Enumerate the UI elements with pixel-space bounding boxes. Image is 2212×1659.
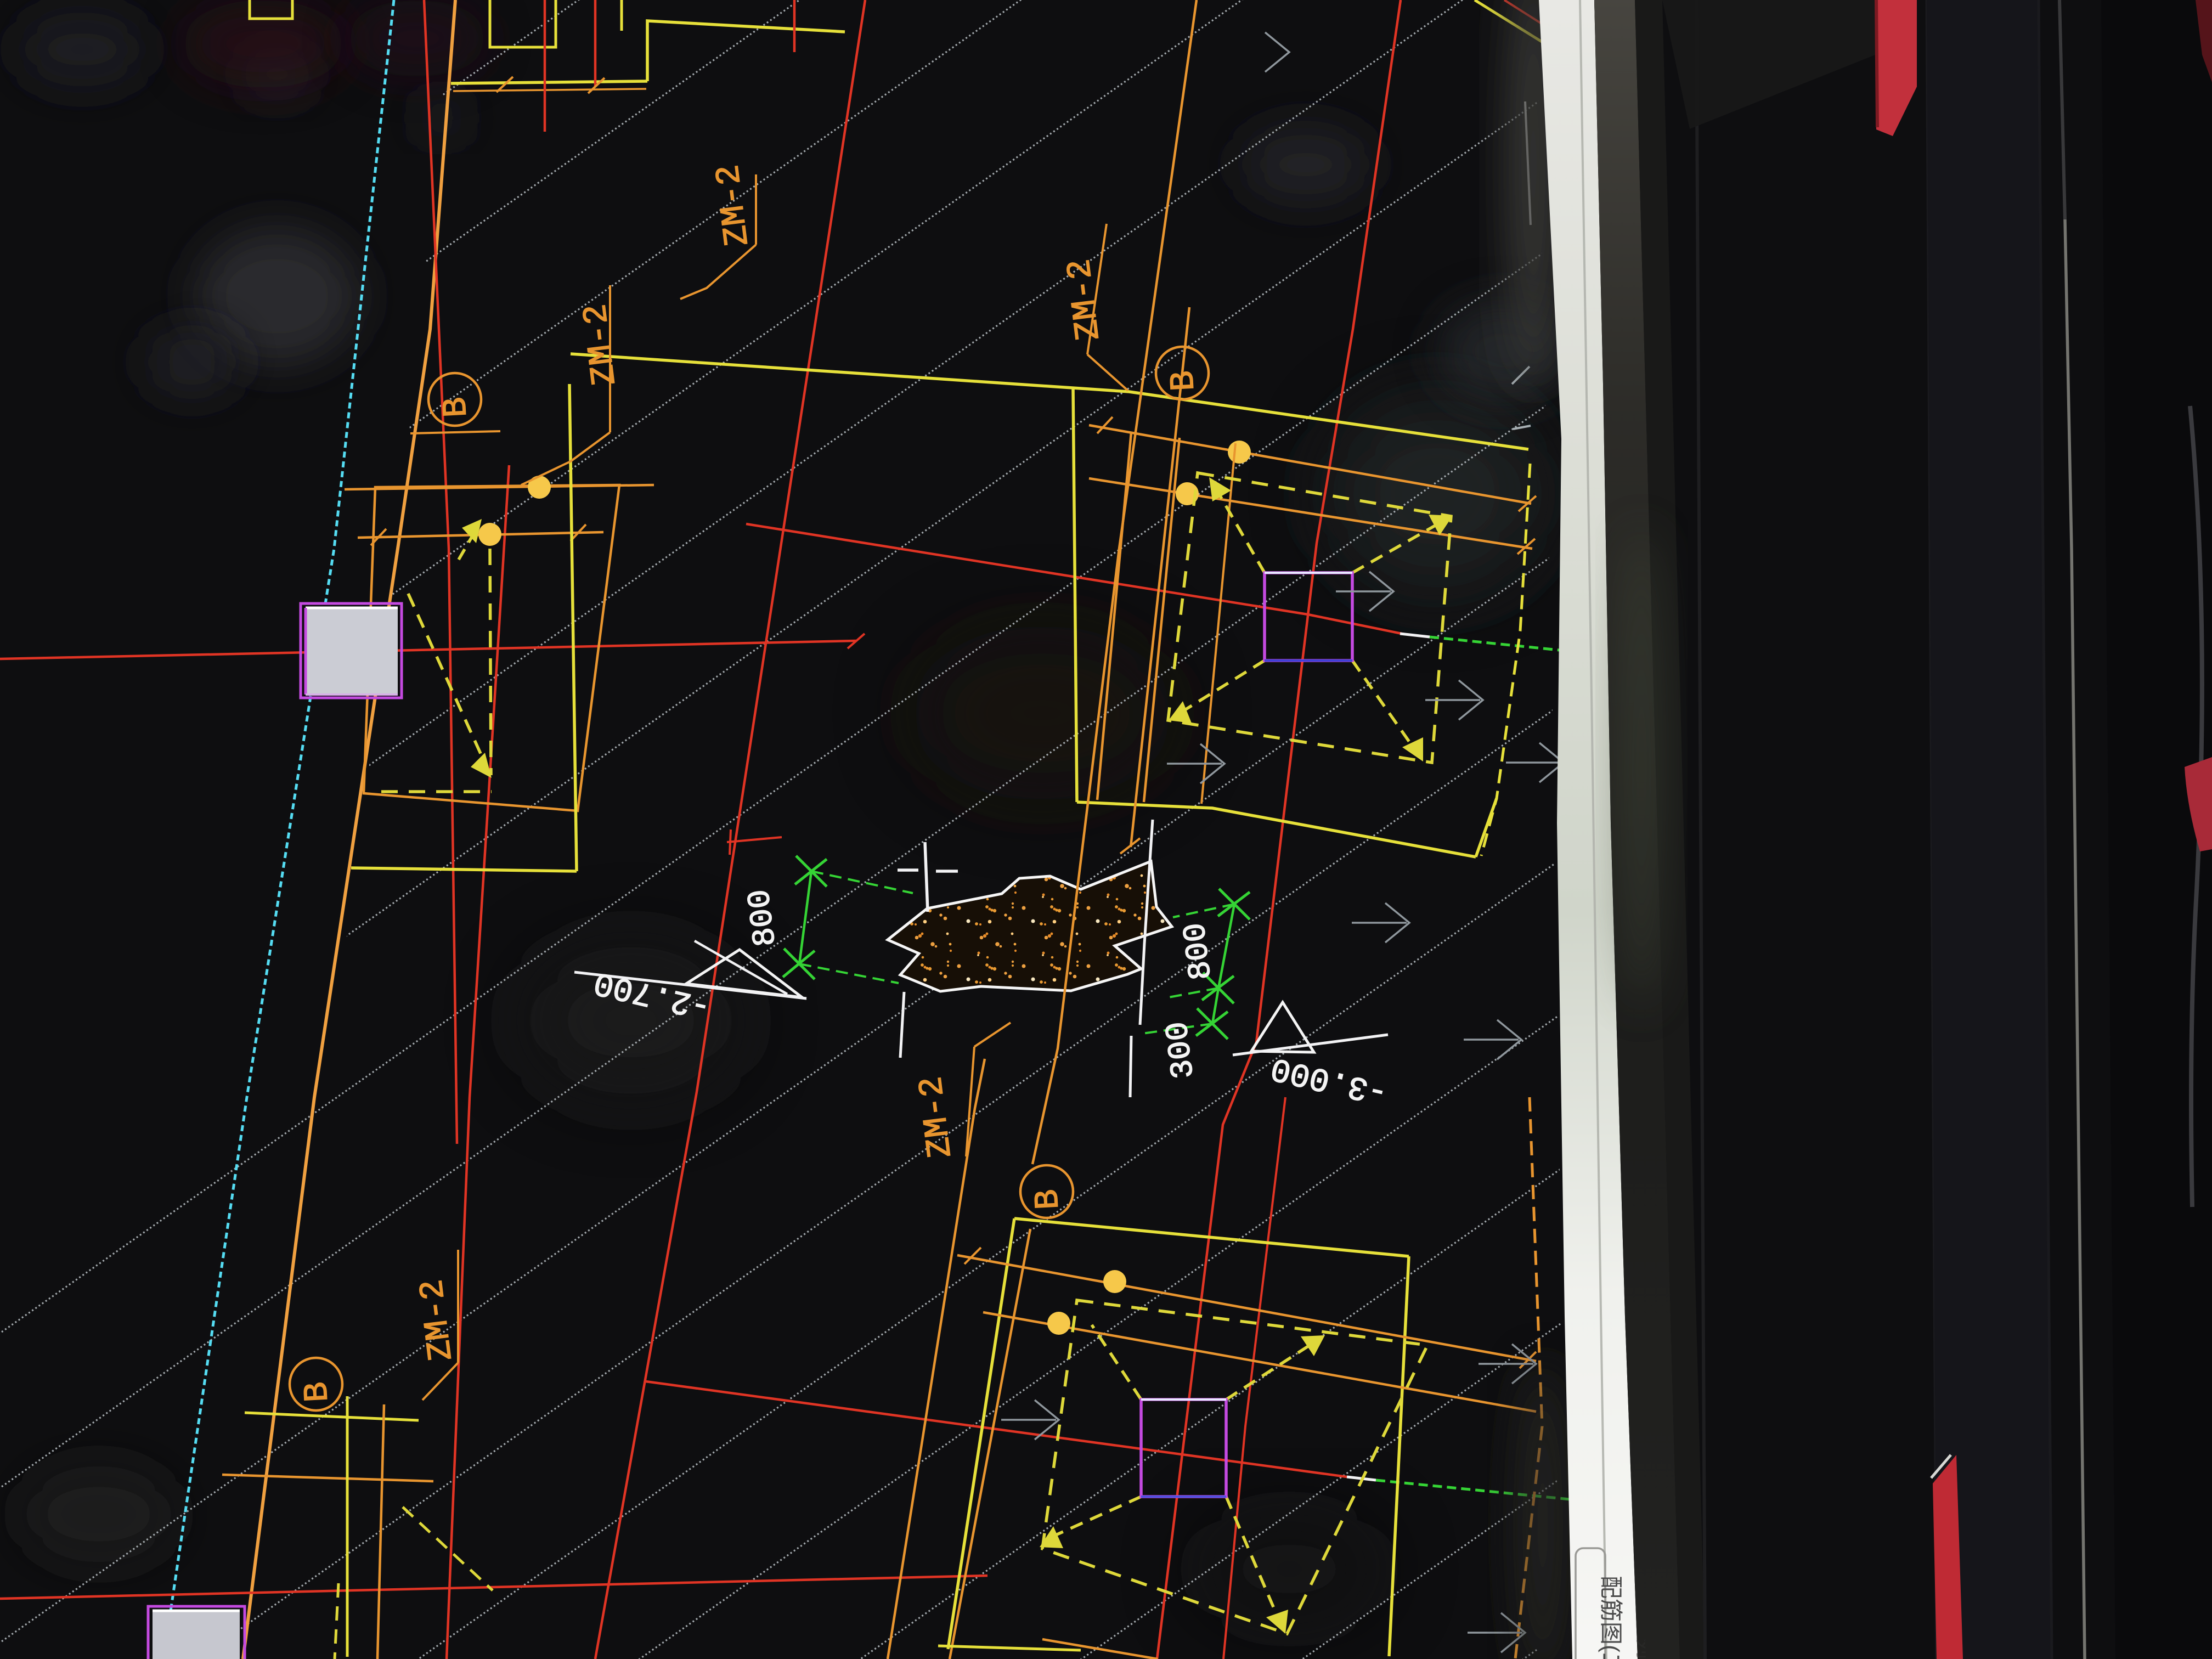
svg-text:B: B [1164,370,1204,392]
svg-text:配筋图(二): 配筋图(二) [1598,1576,1624,1659]
svg-text:B: B [1028,1188,1068,1211]
svg-text:300: 300 [1160,1019,1203,1081]
svg-text:800: 800 [1178,921,1220,982]
svg-text:800: 800 [742,887,785,949]
svg-text:B: B [297,1381,337,1403]
svg-text:B: B [436,396,476,419]
